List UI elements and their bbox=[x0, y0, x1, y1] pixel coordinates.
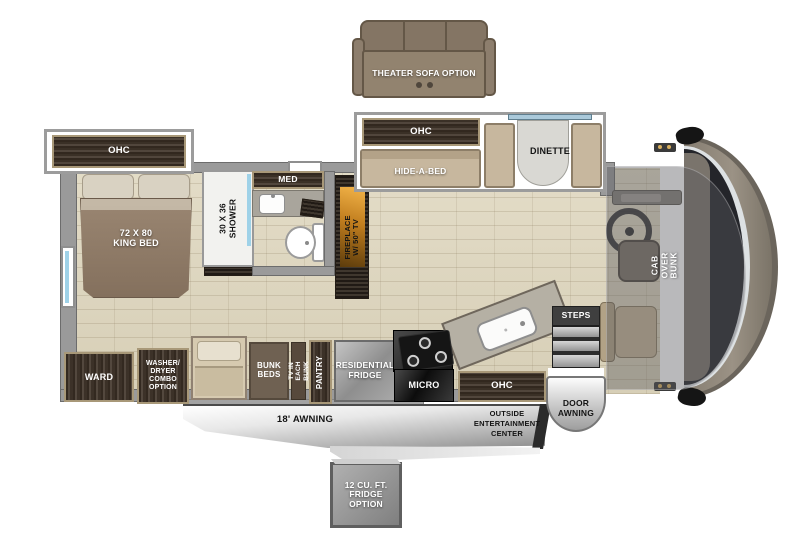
microwave: MICRO bbox=[394, 369, 454, 402]
king-bed-label: 72 X 80KING BED bbox=[80, 228, 192, 248]
bedroom-ohc-label: OHC bbox=[108, 146, 130, 157]
fireplace-label: FIREPLACEW/ 50" TV bbox=[344, 215, 361, 259]
residential-fridge-label: RESIDENTIALFRIDGE bbox=[336, 361, 395, 380]
cab-over-bunk-label: CAB OVERBUNK bbox=[651, 242, 680, 288]
cab-over-bunk-label-wrap: CAB OVERBUNK bbox=[642, 200, 688, 330]
step-tread bbox=[553, 327, 599, 339]
med-cabinet: MED bbox=[252, 171, 324, 189]
bunk-bed-mattress bbox=[191, 336, 247, 400]
washer-dryer-label: WASHER/DRYERCOMBOOPTION bbox=[143, 360, 183, 391]
washer-dryer-cabinet: WASHER/DRYERCOMBOOPTION bbox=[137, 348, 189, 404]
bunk-blanket bbox=[195, 366, 243, 396]
toilet-bowl bbox=[285, 226, 316, 259]
fireplace-tv-cabinet: FIREPLACEW/ 50" TV bbox=[335, 175, 369, 299]
burner bbox=[418, 336, 432, 350]
tv-in-each-bunk-label: TV INEACH BUNK bbox=[288, 361, 310, 381]
rear-window bbox=[61, 246, 75, 308]
steps-label: STEPS bbox=[562, 311, 591, 321]
entry-steps bbox=[552, 326, 600, 368]
bath-bottom-wall bbox=[252, 266, 335, 276]
theater-sofa: THEATER SOFA OPTION bbox=[352, 20, 496, 100]
king-bed-pillow-right bbox=[138, 174, 190, 200]
door-awning-label: DOORAWNING bbox=[558, 399, 594, 418]
king-bed-pillow-left bbox=[82, 174, 134, 200]
pantry-label: PANTRY bbox=[316, 355, 325, 388]
bunk-beds-label: BUNKBEDS bbox=[257, 362, 281, 380]
theater-sofa-seat: THEATER SOFA OPTION bbox=[362, 50, 486, 98]
bath-sink bbox=[259, 194, 285, 214]
rv-floorplan: OHC 72 X 80KING BED 30 X 36SHOWER MED FI… bbox=[0, 0, 800, 545]
cupholder bbox=[416, 82, 422, 88]
bedroom-ohc-cabinet: OHC bbox=[52, 135, 186, 168]
step-tread bbox=[553, 341, 599, 353]
cupholder bbox=[427, 82, 433, 88]
living-ohc-label: OHC bbox=[410, 127, 432, 138]
king-bed-sheet-fold bbox=[81, 199, 191, 210]
marker-light bbox=[667, 145, 671, 149]
fridge-option-bevel bbox=[331, 459, 401, 464]
theater-sofa-label: THEATER SOFA OPTION bbox=[372, 69, 475, 79]
kitchen-ohc-label: OHC bbox=[491, 381, 513, 392]
door-awning: DOORAWNING bbox=[546, 376, 606, 432]
sink-drain bbox=[504, 328, 508, 332]
shower-label-wrap: 30 X 36SHOWER bbox=[204, 172, 252, 265]
rear-window-glass bbox=[65, 251, 69, 303]
ward-label: WARD bbox=[85, 372, 113, 382]
stove bbox=[398, 330, 455, 373]
pantry-cabinet: PANTRY bbox=[309, 340, 332, 404]
hide-a-bed-sofa: HIDE-A-BED bbox=[360, 149, 481, 188]
shower: 30 X 36SHOWER bbox=[202, 170, 254, 267]
microwave-label: MICRO bbox=[409, 380, 440, 390]
hide-a-bed-label: HIDE-A-BED bbox=[394, 167, 446, 177]
residential-fridge: RESIDENTIALFRIDGE bbox=[334, 340, 396, 402]
med-label: MED bbox=[278, 175, 298, 185]
sink-faucet bbox=[519, 320, 525, 326]
fridge-option-label: 12 CU. FT.FRIDGEOPTION bbox=[345, 481, 388, 510]
burner bbox=[406, 354, 420, 368]
toilet-flush bbox=[305, 241, 309, 245]
living-ohc-cabinet: OHC bbox=[362, 118, 480, 146]
bath-vanity bbox=[252, 190, 324, 217]
outside-entertainment-label: OUTSIDEENTERTAINMENTCENTER bbox=[467, 409, 547, 438]
marker-lights-top bbox=[654, 143, 676, 152]
shower-label: 30 X 36SHOWER bbox=[218, 197, 237, 241]
tv-in-each-bunk-panel: TV INEACH BUNK bbox=[291, 342, 306, 400]
bunk-pillow bbox=[197, 341, 241, 361]
dinette-label: DINETTE bbox=[505, 146, 595, 156]
bunk-beds-cabinet: BUNKBEDS bbox=[249, 342, 289, 400]
marker-light bbox=[658, 145, 662, 149]
awning-label: 18' AWNING bbox=[250, 415, 360, 426]
bath-right-wall bbox=[324, 171, 335, 273]
step-tread bbox=[553, 355, 599, 367]
ward-cabinet: WARD bbox=[64, 352, 134, 402]
hide-a-bed-back bbox=[362, 151, 479, 159]
fireplace-label-wrap: FIREPLACEW/ 50" TV bbox=[336, 176, 368, 298]
kitchen-ohc-cabinet: OHC bbox=[458, 371, 546, 402]
fridge-option-box: 12 CU. FT.FRIDGEOPTION bbox=[330, 462, 402, 528]
vanity-corner bbox=[300, 198, 325, 218]
burner bbox=[434, 350, 448, 364]
bath-faucet bbox=[271, 194, 275, 198]
steps-label-band: STEPS bbox=[552, 306, 600, 326]
